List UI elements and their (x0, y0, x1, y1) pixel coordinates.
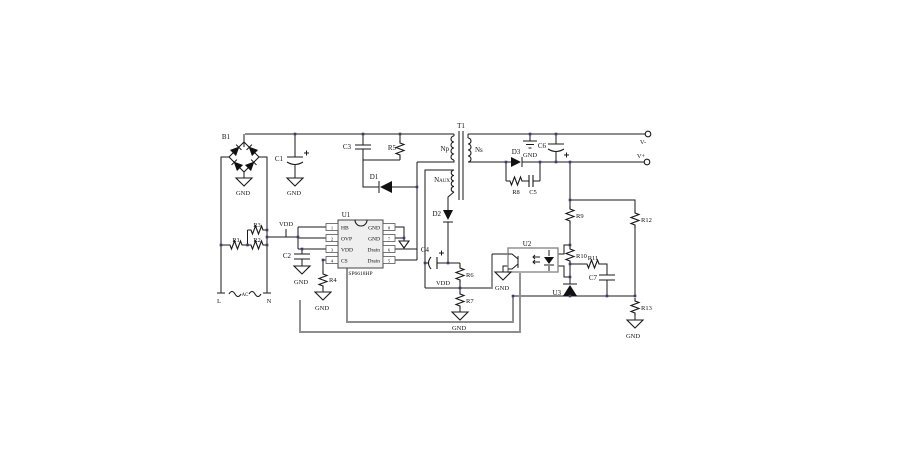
component-label-r13: R13 (641, 305, 652, 312)
u1-pin-number: 1 (331, 225, 333, 230)
aux-winding-label: Naux (434, 176, 450, 184)
component-label-r8: R8 (512, 189, 520, 196)
component-label-c6: C6 (538, 142, 547, 150)
u1-pin-name-ovp: OVP (341, 237, 352, 243)
gnd-label: GND (523, 152, 537, 159)
gnd-label: GND (315, 305, 329, 312)
component-label-c2: C2 (283, 252, 292, 260)
ac-label: AC (242, 293, 249, 298)
u1-pin-name-cs: CS (341, 259, 348, 265)
schematic-page: AC L N B1 GND C1 GND R1 R2 R3 VDD C2 GND (0, 0, 900, 453)
component-label-r5: R5 (388, 144, 397, 152)
primary-winding-label: Np (440, 145, 449, 153)
u1-pin-name-vdd: VDD (341, 248, 353, 254)
u1-pin-name-hb: HB (341, 226, 349, 232)
component-label-d3: D3 (512, 148, 521, 156)
startup-resistors: R1 R2 R3 VDD (227, 221, 293, 249)
component-label-d1: D1 (370, 173, 379, 181)
component-label-r3: R3 (253, 222, 261, 229)
gnd-label: GND (495, 285, 509, 292)
component-label-c1: C1 (275, 155, 284, 163)
component-label-r11: R11 (588, 255, 599, 262)
gnd-label: GND (626, 333, 640, 340)
component-label-t1: T1 (457, 122, 465, 130)
u1-pin-name-drain5: Drain (367, 259, 380, 265)
v-minus-terminal (645, 131, 651, 137)
u1-part-number: SP6618HP (348, 271, 372, 277)
u1-gnd-arrow (399, 241, 409, 248)
component-label-r2: R2 (253, 237, 261, 244)
secondary-winding-label: Ns (475, 146, 483, 154)
component-label-r1: R1 (232, 237, 240, 244)
resistor-r4: R4 GND (315, 271, 337, 312)
gray-rails (245, 134, 645, 332)
component-label-u1: U1 (342, 211, 351, 219)
feedback-network: R9 R10 R11 C7 U3 R12 R13 GND (552, 206, 651, 340)
component-label-r6: R6 (466, 272, 474, 279)
u1-pin-name-gnd7: GND (368, 237, 380, 243)
component-label-r9: R9 (576, 213, 584, 220)
u1-pin-name-gnd8: GND (368, 226, 380, 232)
u1-pin-number: 2 (331, 236, 333, 241)
power-supply-schematic: AC L N B1 GND C1 GND R1 R2 R3 VDD C2 GND (0, 0, 900, 453)
component-label-u3: U3 (552, 289, 561, 297)
bridge-rectifier-b1: B1 GND (222, 133, 259, 197)
component-label-c7: C7 (589, 274, 598, 282)
component-label-c4: C4 (421, 246, 430, 254)
v-plus-terminal (644, 159, 650, 165)
component-label-r10: R10 (576, 253, 587, 260)
gnd-label: GND (452, 325, 466, 332)
gnd-label: GND (294, 279, 308, 286)
gnd-label: GND (287, 190, 301, 197)
neutral-terminal-label: N (267, 298, 272, 305)
component-label-r4: R4 (329, 277, 337, 284)
capacitor-c1: C1 GND (275, 151, 309, 198)
component-label-c3: C3 (343, 143, 352, 151)
controller-u1: U1 SP6618HP 1 2 3 4 8 7 6 5 HB OVP VDD C… (326, 211, 409, 277)
component-label-r7: R7 (466, 298, 474, 305)
live-terminal-label: L (217, 298, 221, 305)
component-label-b1: B1 (222, 133, 231, 141)
snubber-clamp: C3 R5 D1 (343, 140, 404, 193)
component-label-u2: U2 (523, 240, 532, 248)
v-minus-label: V- (640, 139, 646, 146)
ac-source: AC L N (217, 292, 272, 306)
secondary-rectifier: D3 R8 C5 GND C6 V- V+ (507, 131, 651, 196)
gnd-label: GND (236, 190, 250, 197)
vdd-label: VDD (279, 221, 293, 228)
vdd-label: VDD (436, 280, 450, 287)
component-label-r12: R12 (641, 217, 652, 224)
component-label-d2: D2 (432, 210, 441, 218)
component-label-c5: C5 (529, 189, 537, 196)
u1-pin-name-drain6: Drain (367, 248, 380, 254)
v-plus-label: V+ (637, 153, 646, 160)
capacitor-c2: C2 GND (283, 252, 310, 286)
